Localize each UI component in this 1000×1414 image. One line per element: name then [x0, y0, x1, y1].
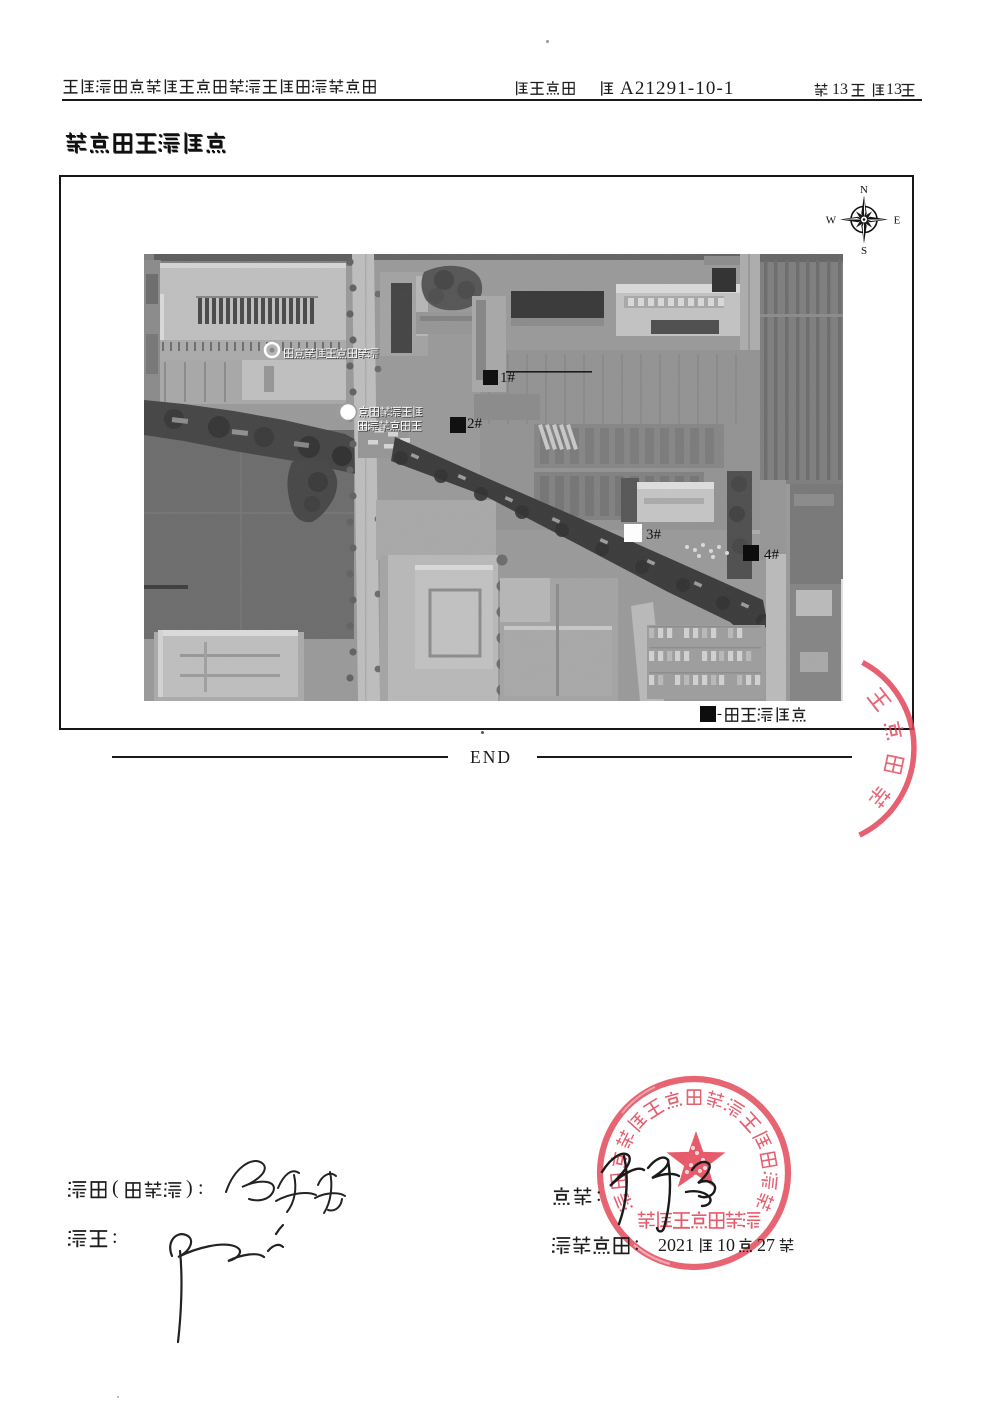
svg-text:E: E	[894, 215, 901, 227]
svg-text:S: S	[861, 245, 867, 257]
svg-text:W: W	[826, 215, 837, 227]
svg-text:N: N	[860, 184, 868, 196]
